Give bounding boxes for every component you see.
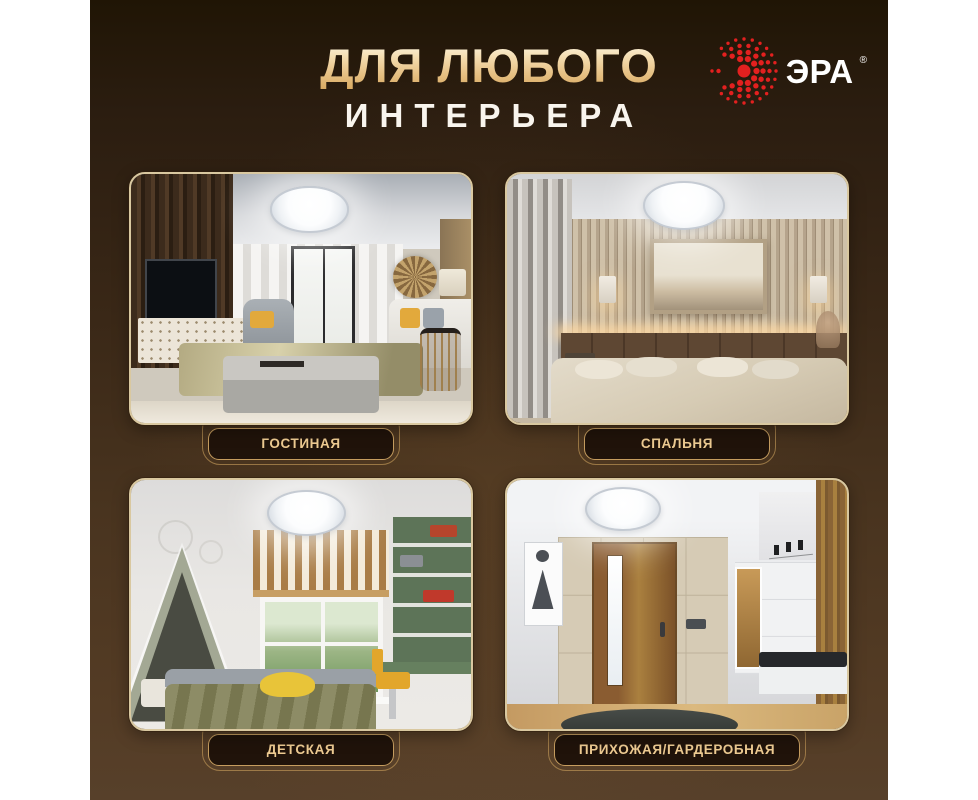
- yellow-pillow: [260, 672, 314, 697]
- toy: [400, 555, 424, 567]
- wall-sconce: [810, 276, 827, 303]
- wall-doodle: [158, 520, 193, 554]
- coat-hook: [774, 545, 779, 555]
- room-card-hallway: ПРИХОЖАЯ/ГАРДЕРОБНАЯ: [505, 478, 849, 771]
- tv-screen: [145, 259, 217, 323]
- chair: [376, 672, 410, 689]
- toy-car: [423, 590, 454, 602]
- window-mullion: [323, 249, 325, 359]
- room-card-bedroom: СПАЛЬНЯ: [505, 172, 849, 465]
- pillow: [697, 357, 748, 377]
- wall-sconce: [599, 276, 616, 303]
- living-room-photo: [129, 172, 473, 425]
- room-label: ГОСТИНАЯ: [261, 436, 340, 451]
- promo-poster: ДЛЯ ЛЮБОГО ИНТЕРЬЕРА ЭРА ®: [90, 0, 888, 800]
- mirror-niche: [735, 567, 762, 669]
- yellow-pillow: [400, 308, 420, 328]
- room-plaque: ПРИХОЖАЯ/ГАРДЕРОБНАЯ: [554, 734, 800, 766]
- gray-pillow: [423, 308, 443, 328]
- room-label: ПРИХОЖАЯ/ГАРДЕРОБНАЯ: [579, 742, 775, 757]
- era-sunburst-icon: [707, 34, 781, 108]
- room-plaque: СПАЛЬНЯ: [584, 428, 770, 460]
- room-grid: ГОСТИНАЯ: [129, 172, 849, 771]
- promo-page: ДЛЯ ЛЮБОГО ИНТЕРЬЕРА ЭРА ®: [0, 0, 978, 800]
- door-handle: [660, 622, 665, 637]
- pillow: [575, 360, 623, 380]
- room-plaque: ДЕТСКАЯ: [208, 734, 394, 766]
- chair: [372, 649, 382, 674]
- bedroom-scene: [507, 174, 847, 423]
- room-label: ДЕТСКАЯ: [267, 742, 336, 757]
- brand-logo: ЭРА ®: [707, 34, 866, 108]
- kids-room-scene: [131, 480, 471, 729]
- coat-hook: [786, 542, 791, 552]
- door-glass-insert: [607, 555, 623, 686]
- table-lamp: [439, 269, 466, 296]
- bedroom-photo: [505, 172, 849, 425]
- hallway-scene: [507, 480, 847, 729]
- decor-floor-lamp: [393, 256, 437, 298]
- room-card-kids-room: ДЕТСКАЯ: [129, 478, 473, 771]
- window-mullion: [265, 642, 377, 646]
- brand-name: ЭРА: [786, 55, 854, 88]
- wall-art: [650, 239, 767, 314]
- living-room-scene: [131, 174, 471, 423]
- toy: [430, 525, 457, 537]
- pillow: [626, 357, 677, 377]
- registered-trademark-icon: ®: [860, 55, 867, 66]
- room-card-living-room: ГОСТИНАЯ: [129, 172, 473, 465]
- chair-leg: [389, 689, 396, 719]
- ceiling-light: [267, 490, 346, 536]
- striped-blind: [253, 530, 389, 597]
- bench-cushion: [759, 652, 847, 667]
- room-plaque: ГОСТИНАЯ: [208, 428, 394, 460]
- coat-hook: [798, 540, 803, 550]
- intercom-panel: [686, 619, 706, 629]
- room-label: СПАЛЬНЯ: [641, 436, 713, 451]
- wire-side-table: [420, 328, 461, 390]
- kids-room-photo: [129, 478, 473, 731]
- ceiling-light: [270, 186, 349, 232]
- dried-flowers: [816, 311, 840, 348]
- pillow: [752, 360, 800, 380]
- poster-header: ДЛЯ ЛЮБОГО ИНТЕРЬЕРА ЭРА ®: [90, 0, 888, 172]
- books: [260, 361, 304, 367]
- hallway-photo: [505, 478, 849, 731]
- ceiling-light: [585, 487, 660, 531]
- wall-doodle: [199, 540, 223, 564]
- yellow-pillow: [250, 311, 274, 328]
